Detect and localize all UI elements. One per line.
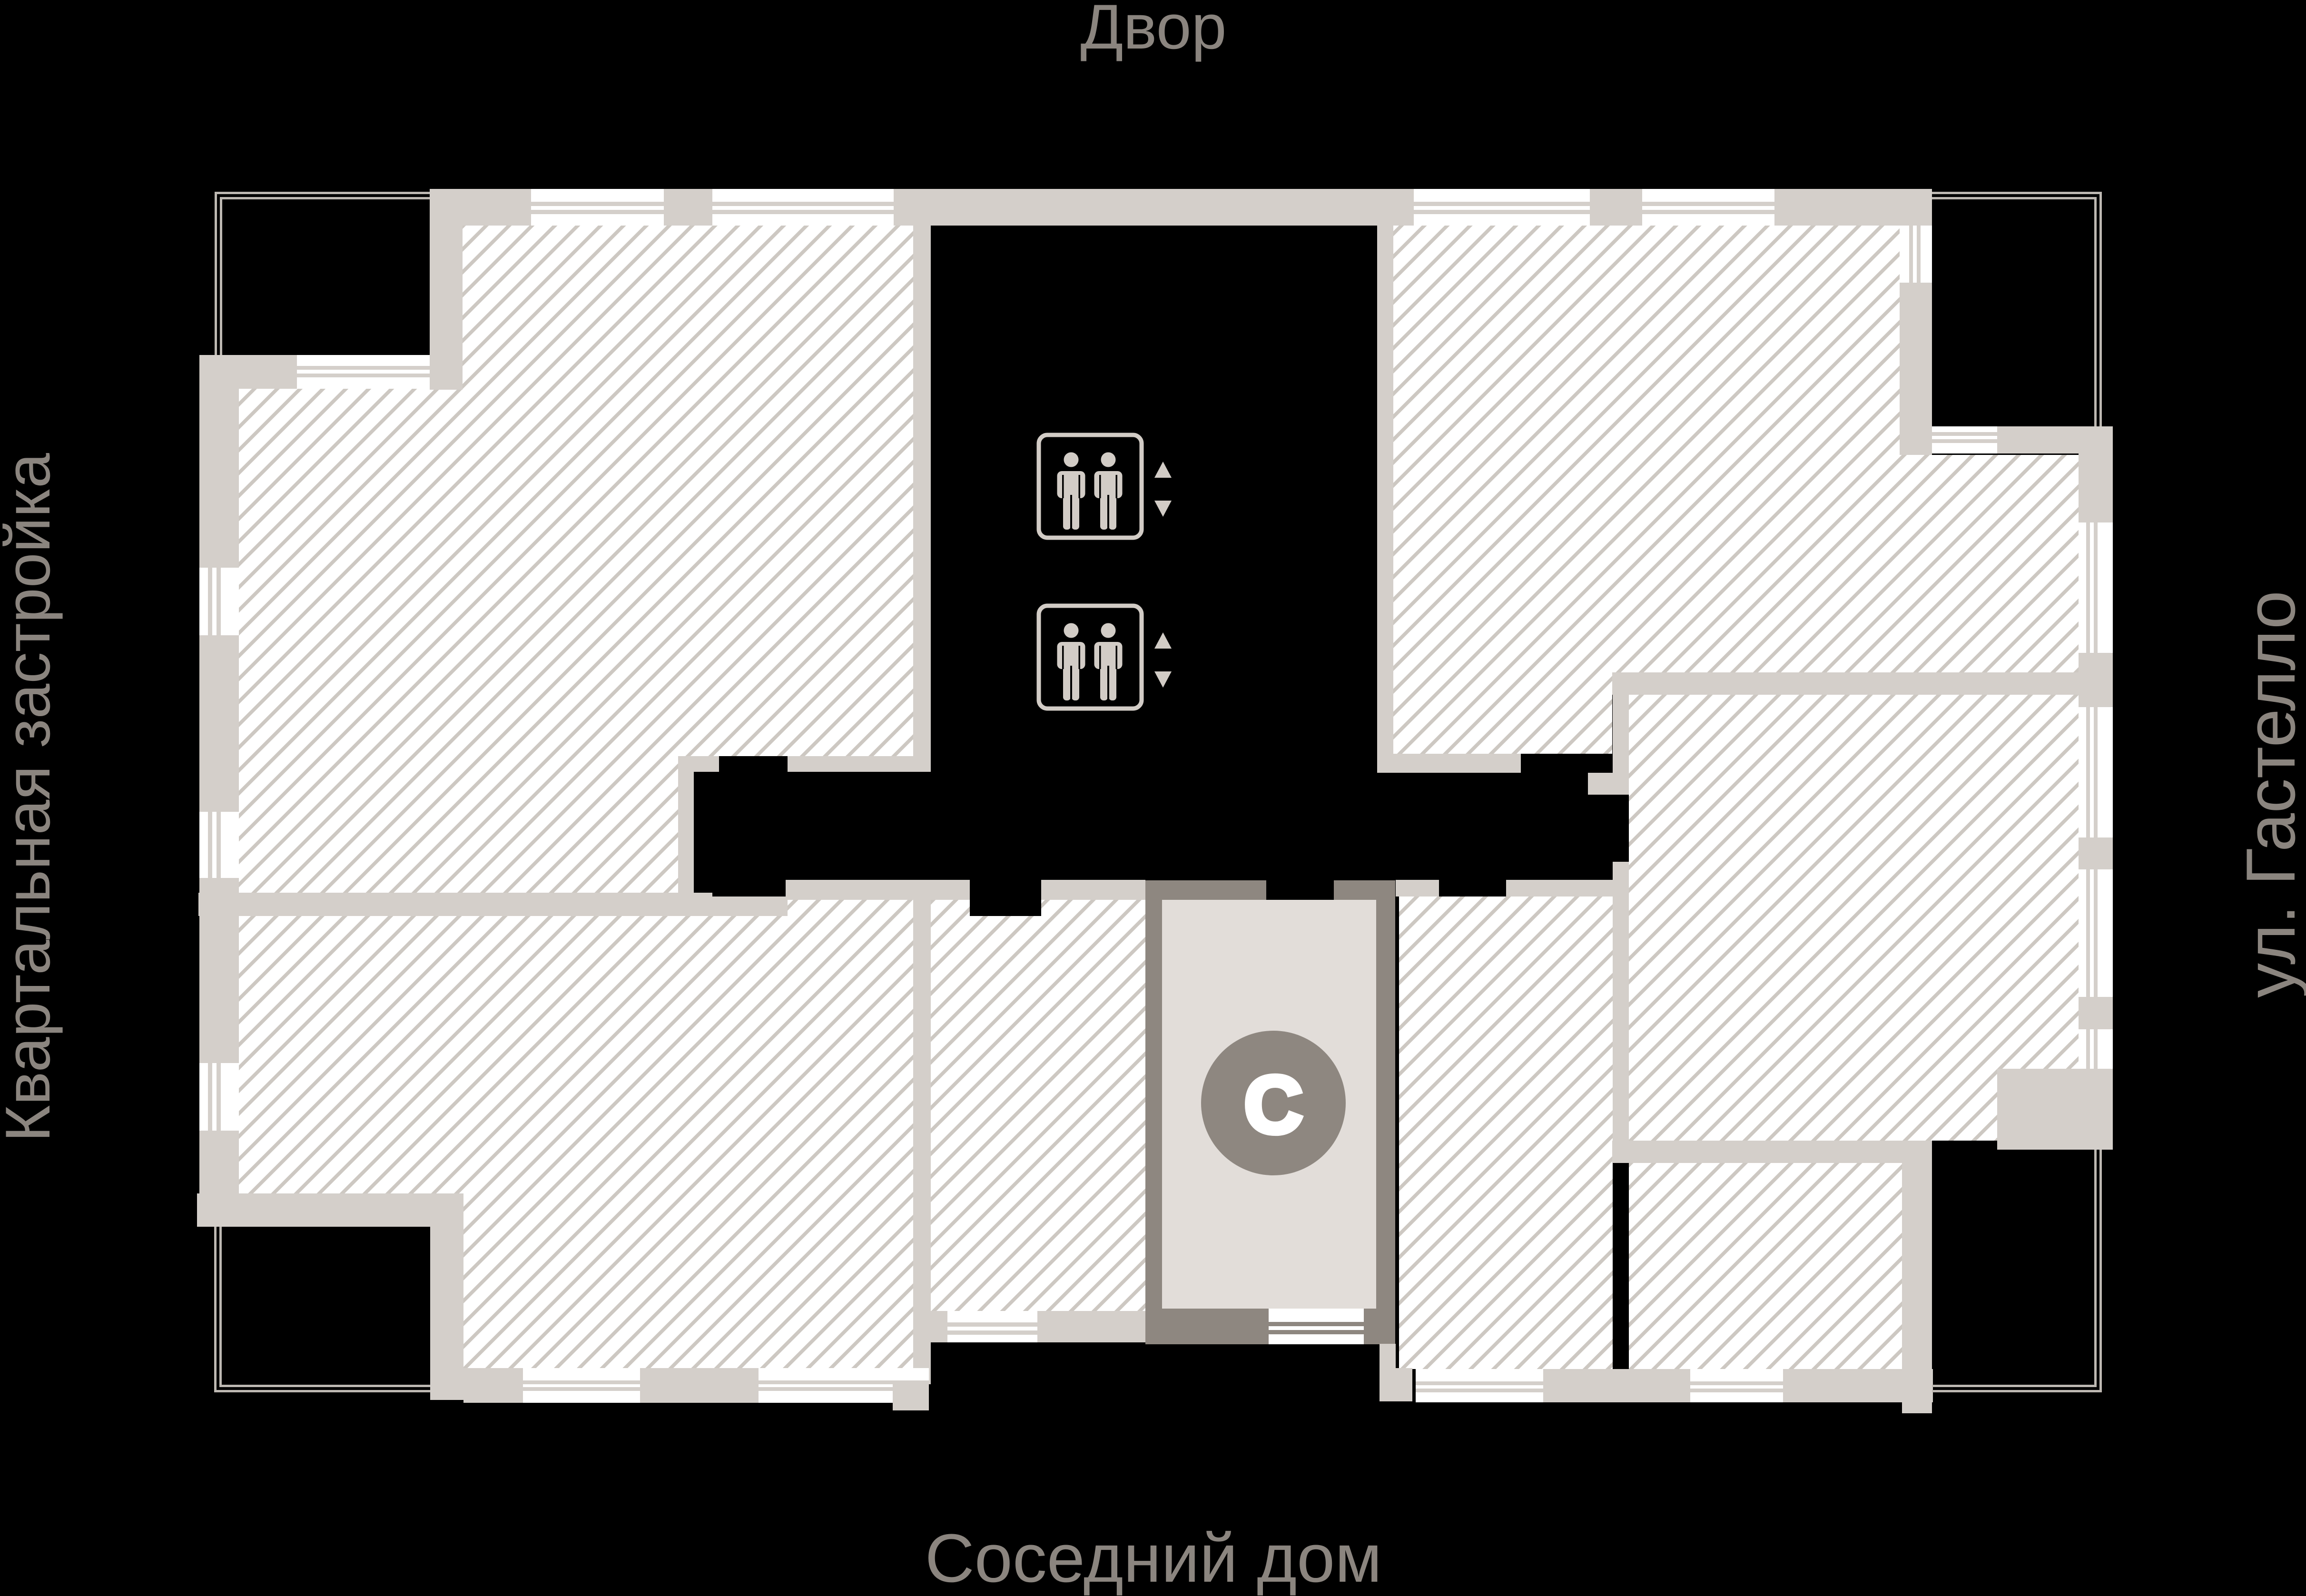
svg-text:ул. Гастелло: ул. Гастелло xyxy=(2232,591,2306,998)
svg-text:С: С xyxy=(1244,1060,1303,1150)
svg-text:Соседний дом: Соседний дом xyxy=(925,1520,1382,1596)
svg-text:Двор: Двор xyxy=(1080,0,1226,62)
svg-text:Квартальная застройка: Квартальная застройка xyxy=(0,453,63,1142)
